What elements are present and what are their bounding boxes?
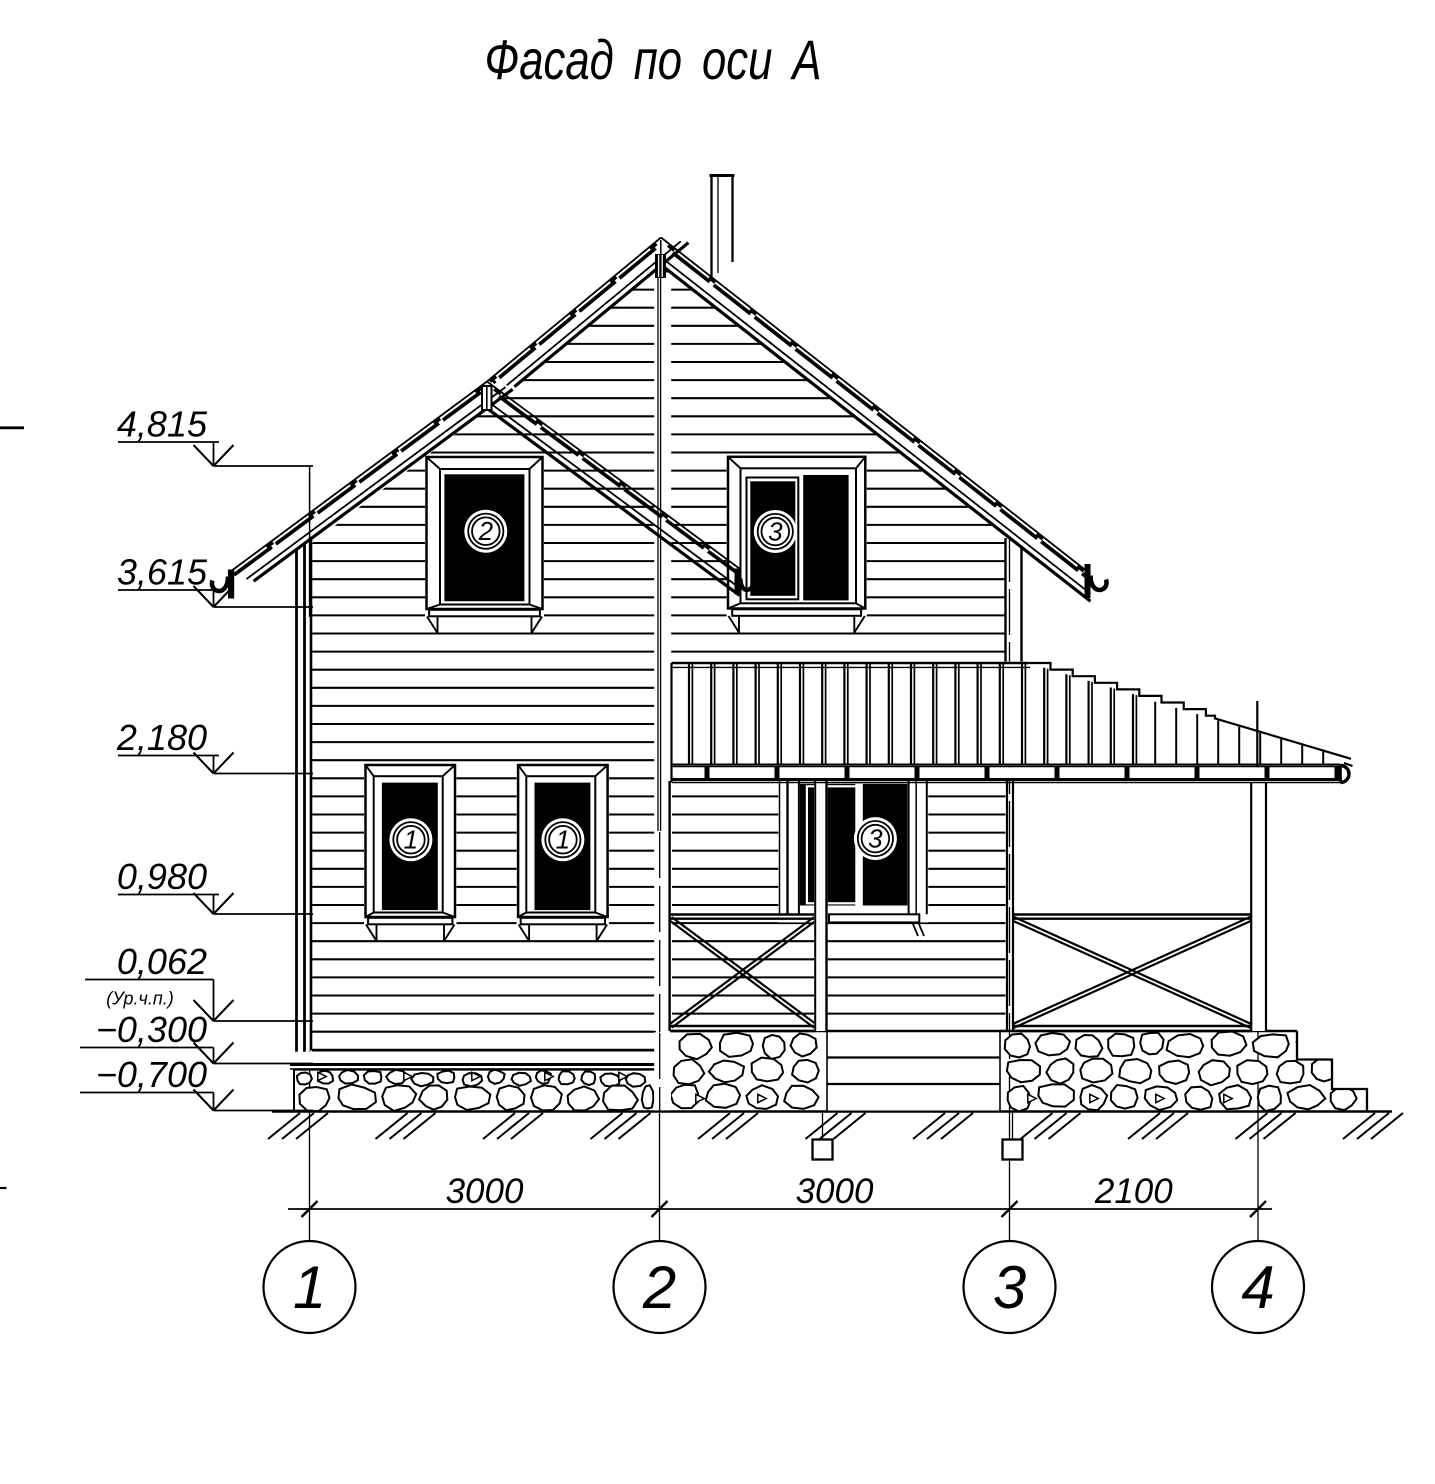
svg-text:3000: 3000 [796,1172,874,1211]
svg-text:2,180: 2,180 [116,717,207,758]
svg-text:4,815: 4,815 [117,404,208,445]
svg-text:1: 1 [293,1254,326,1321]
svg-text:1: 1 [556,825,570,855]
svg-text:3: 3 [768,517,783,547]
svg-text:4: 4 [1241,1254,1274,1321]
svg-text:Фасад по оси А: Фасад по оси А [485,29,822,91]
svg-text:0,980: 0,980 [117,856,207,897]
svg-text:3: 3 [868,824,883,854]
svg-text:2100: 2100 [1094,1172,1173,1211]
svg-text:2: 2 [478,516,494,546]
svg-text:(Ур.ч.п.): (Ур.ч.п.) [106,989,174,1009]
svg-text:2: 2 [642,1254,676,1321]
svg-text:−0,700: −0,700 [96,1054,207,1095]
svg-text:−0,300: −0,300 [96,1009,207,1050]
svg-text:3: 3 [993,1254,1026,1321]
svg-text:1: 1 [404,825,418,855]
svg-text:3000: 3000 [446,1172,524,1211]
svg-text:0,062: 0,062 [117,941,207,982]
